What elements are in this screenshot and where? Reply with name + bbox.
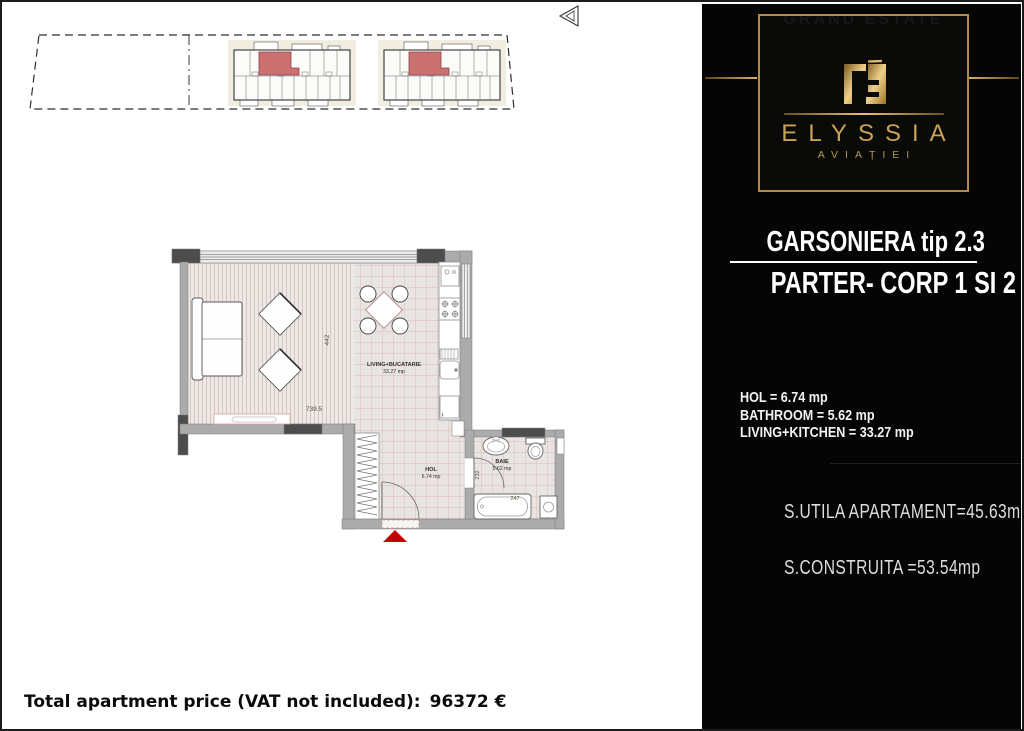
room-line-living-kitchen: LIVING+KITCHEN = 33.27 mp xyxy=(740,424,947,442)
usable-area-line: S.UTILA APARTAMENT=45.63mp xyxy=(740,470,1024,526)
drainboard xyxy=(440,349,458,359)
built-area-line: S.CONSTRUITA =53.54mp xyxy=(740,526,1024,582)
dimension-tub: 247 xyxy=(510,496,519,502)
bathroom-label: BAIE xyxy=(495,459,509,465)
floor-plan: I LIVING+BUCATARIE xyxy=(162,232,582,547)
room-area-list: HOL = 6.74 mp BATHROOM = 5.62 mp LIVING+… xyxy=(740,389,947,442)
sofa xyxy=(192,298,242,380)
elyssia-monogram-icon xyxy=(834,60,894,108)
logo-divider xyxy=(784,113,944,115)
dimension-width: 739.5 xyxy=(306,406,323,413)
tv-console xyxy=(214,414,290,424)
stove xyxy=(439,298,460,320)
kitchen-counter: I xyxy=(439,262,460,420)
living-room-area: 33.27 mp xyxy=(383,369,405,375)
panel-divider xyxy=(830,463,1021,464)
bathroom-area: 5.62 mp xyxy=(493,466,512,472)
brand-location: AVIAȚIEI xyxy=(760,149,967,161)
hallway-label: HOL xyxy=(425,467,437,473)
price-label: Total apartment price (VAT not included)… xyxy=(24,692,421,712)
site-plan xyxy=(22,2,602,132)
gold-accent-line xyxy=(969,77,1019,79)
building-footprint-1 xyxy=(228,40,356,106)
dining-table xyxy=(360,286,408,334)
washing-machine xyxy=(540,496,557,518)
unit-title: GARSONIERA tip 2.3 xyxy=(732,226,1015,259)
price-value: 96372 € xyxy=(430,692,507,712)
logo-box: GRAND ESTATE ELYSSIA AVIAȚIEI xyxy=(758,14,969,192)
total-area-list: S.UTILA APARTAMENT=45.63mp S.CONSTRUITA … xyxy=(740,470,1024,582)
svg-text:I: I xyxy=(442,412,443,417)
unit-floor: PARTER- CORP 1 SI 2 xyxy=(732,265,1015,301)
gold-accent-line xyxy=(705,77,757,79)
living-room-label: LIVING+BUCATARIE xyxy=(367,362,421,368)
hallway-area: 6.74 mp xyxy=(422,474,441,480)
brand-panel: GRAND ESTATE ELYSSIA AVIAȚIEI xyxy=(702,4,1021,729)
price-bar: Total apartment price (VAT not included)… xyxy=(24,692,516,712)
room-line-hol: HOL = 6.74 mp xyxy=(740,389,947,407)
brand-name: ELYSSIA xyxy=(760,120,967,148)
bathtub xyxy=(474,494,531,519)
flyer-page: I LIVING+BUCATARIE xyxy=(0,0,1024,731)
dimension-height: 442 xyxy=(324,334,331,345)
bathroom-sink xyxy=(483,437,509,455)
north-arrow-icon xyxy=(560,6,578,26)
building-footprint-2 xyxy=(378,40,506,106)
dimension-bath-door: 232 xyxy=(475,470,481,479)
entrance-arrow-icon xyxy=(383,530,407,542)
logo-faint-text: GRAND ESTATE xyxy=(760,14,967,29)
title-underline xyxy=(730,261,977,263)
room-line-bathroom: BATHROOM = 5.62 mp xyxy=(740,407,947,425)
closet xyxy=(355,433,379,519)
